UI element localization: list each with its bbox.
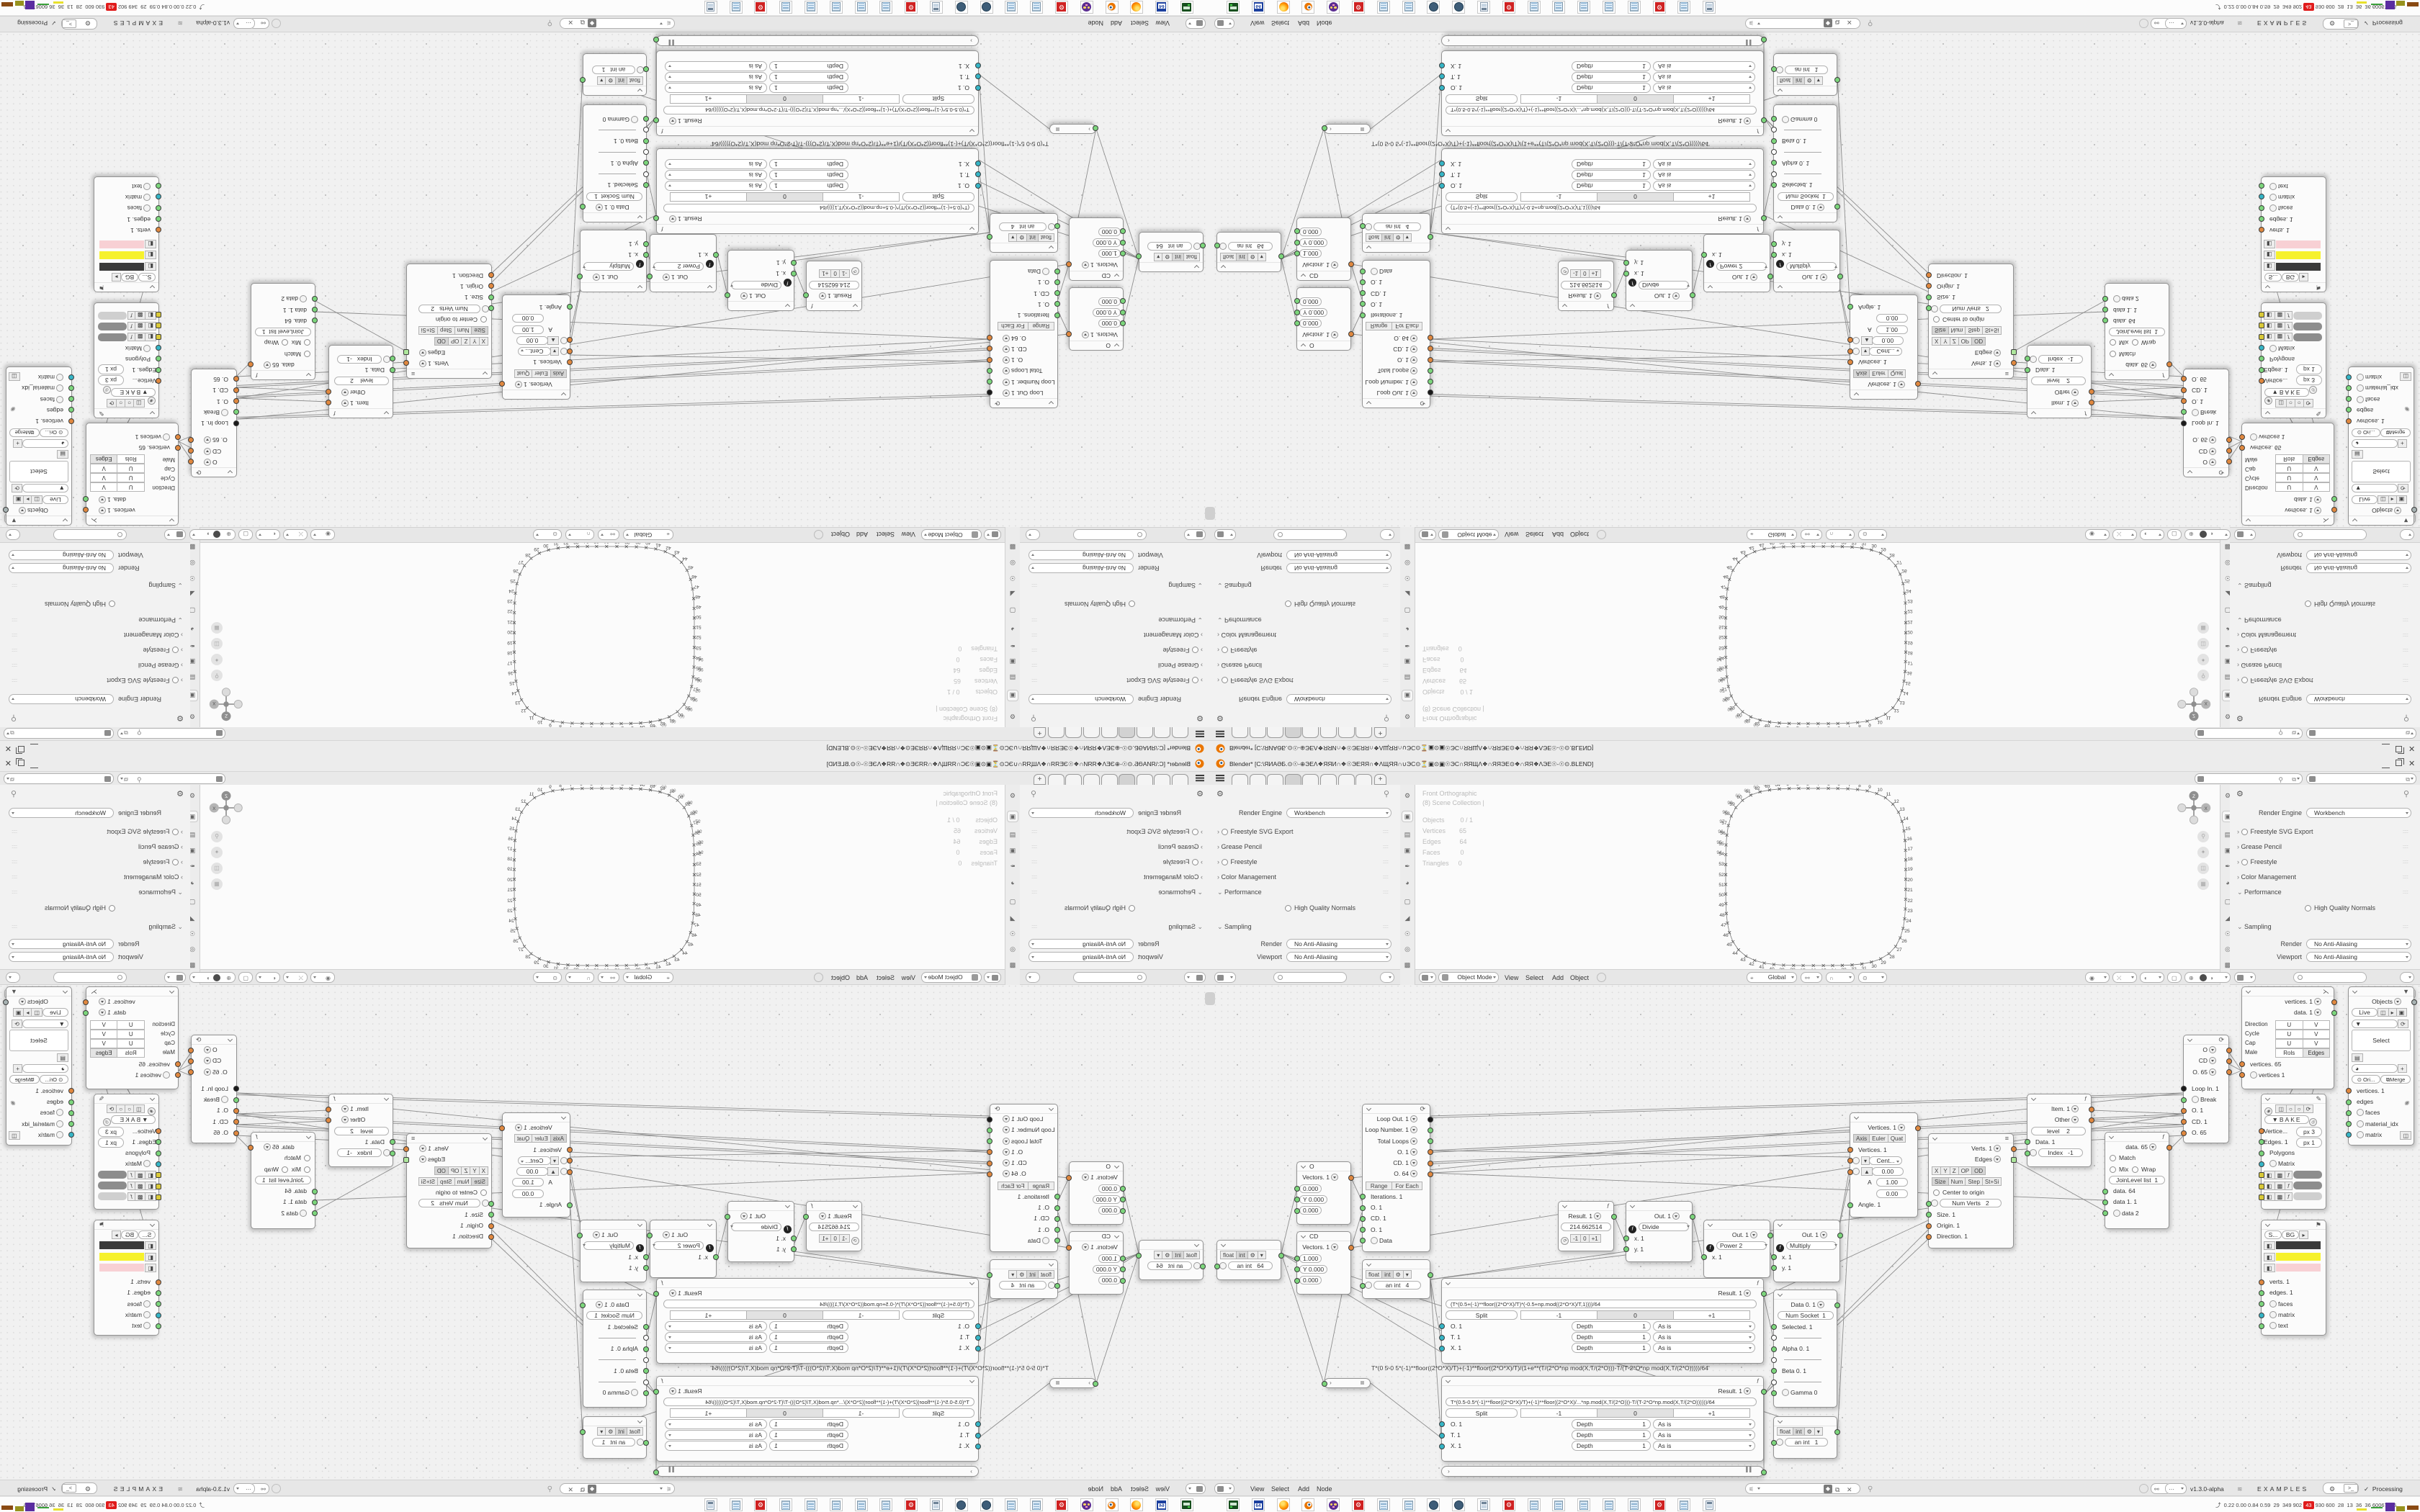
svg-text:63: 63 <box>1763 724 1769 727</box>
svg-text:29: 29 <box>1881 546 1886 552</box>
svg-text:48: 48 <box>1719 913 1725 918</box>
svg-text:95: 95 <box>698 667 704 672</box>
svg-text:52: 52 <box>1718 634 1724 639</box>
svg-text:27: 27 <box>1896 559 1902 564</box>
svg-text:46: 46 <box>691 933 697 938</box>
svg-text:1: 1 <box>632 726 635 727</box>
svg-text:99: 99 <box>1727 706 1733 711</box>
svg-text:45: 45 <box>688 564 694 570</box>
svg-text:12: 12 <box>521 708 526 713</box>
svg-text:9: 9 <box>1868 785 1871 790</box>
svg-text:46: 46 <box>691 574 697 579</box>
svg-text:9: 9 <box>549 785 552 790</box>
svg-text:12: 12 <box>1894 708 1899 713</box>
svg-text:50: 50 <box>1718 893 1724 898</box>
svg-text:29: 29 <box>1881 960 1886 966</box>
svg-text:48: 48 <box>695 594 701 599</box>
svg-text:8: 8 <box>1858 785 1861 788</box>
svg-text:20: 20 <box>1907 629 1913 634</box>
svg-text:96: 96 <box>696 678 702 683</box>
svg-text:44: 44 <box>1732 951 1738 956</box>
svg-text:95: 95 <box>1716 667 1722 672</box>
svg-text:17: 17 <box>1907 660 1913 665</box>
svg-text:21: 21 <box>1907 888 1913 893</box>
svg-text:49: 49 <box>696 604 702 609</box>
svg-text:60: 60 <box>1735 793 1741 798</box>
svg-text:63: 63 <box>1763 785 1769 788</box>
svg-text:30: 30 <box>543 543 549 548</box>
svg-text:29: 29 <box>534 546 539 552</box>
svg-text:16: 16 <box>508 670 514 675</box>
svg-text:12: 12 <box>521 799 526 804</box>
svg-text:46: 46 <box>1723 574 1729 579</box>
svg-text:38: 38 <box>624 543 630 544</box>
svg-text:5: 5 <box>590 785 593 787</box>
svg-text:43: 43 <box>674 549 680 554</box>
svg-text:4: 4 <box>602 726 605 727</box>
svg-text:60: 60 <box>679 793 685 798</box>
svg-text:64: 64 <box>641 785 647 786</box>
svg-text:1: 1 <box>1785 785 1788 786</box>
svg-text:16: 16 <box>508 837 514 842</box>
svg-text:Z: Z <box>225 794 228 799</box>
svg-text:22: 22 <box>507 608 513 613</box>
svg-text:3: 3 <box>1805 785 1808 786</box>
svg-text:52: 52 <box>696 873 702 878</box>
svg-text:44: 44 <box>1732 556 1738 561</box>
svg-text:95: 95 <box>1716 840 1722 845</box>
svg-text:45: 45 <box>1726 564 1732 570</box>
svg-text:15: 15 <box>509 827 515 832</box>
svg-text:30: 30 <box>1871 964 1877 969</box>
svg-text:24: 24 <box>1906 919 1912 924</box>
svg-text:X: X <box>2205 806 2208 811</box>
svg-text:10: 10 <box>1877 788 1883 793</box>
svg-text:17: 17 <box>507 847 513 852</box>
svg-text:62: 62 <box>661 722 667 727</box>
svg-text:2: 2 <box>622 726 625 727</box>
svg-text:43: 43 <box>1740 958 1746 963</box>
svg-text:48: 48 <box>695 913 701 918</box>
svg-text:45: 45 <box>688 942 694 948</box>
svg-text:6: 6 <box>1837 725 1840 727</box>
svg-text:17: 17 <box>507 660 513 665</box>
svg-text:94: 94 <box>1716 657 1722 662</box>
svg-text:6: 6 <box>1837 785 1840 787</box>
svg-text:5: 5 <box>1827 725 1830 727</box>
svg-text:38: 38 <box>1790 543 1796 544</box>
svg-text:11: 11 <box>1886 792 1891 797</box>
svg-text:52: 52 <box>1718 873 1724 878</box>
svg-text:26: 26 <box>513 568 519 573</box>
svg-text:51: 51 <box>696 624 702 629</box>
svg-text:42: 42 <box>1749 545 1754 550</box>
svg-text:8: 8 <box>559 724 562 727</box>
svg-text:94: 94 <box>1716 850 1722 855</box>
svg-text:21: 21 <box>1907 619 1913 624</box>
svg-text:47: 47 <box>1721 584 1726 589</box>
svg-text:7: 7 <box>1848 785 1851 788</box>
svg-text:18: 18 <box>1907 857 1913 862</box>
svg-text:3: 3 <box>1805 726 1808 727</box>
svg-text:49: 49 <box>1718 604 1724 609</box>
svg-text:97: 97 <box>1719 688 1725 693</box>
svg-text:61: 61 <box>671 719 676 724</box>
svg-text:28: 28 <box>1889 955 1895 960</box>
svg-text:3: 3 <box>612 726 615 727</box>
svg-text:7: 7 <box>569 785 572 788</box>
svg-text:14: 14 <box>511 690 517 696</box>
svg-text:11: 11 <box>529 715 534 720</box>
svg-text:28: 28 <box>525 552 531 557</box>
svg-text:22: 22 <box>1907 899 1913 904</box>
svg-text:2: 2 <box>1795 726 1798 727</box>
svg-text:64: 64 <box>1773 785 1779 786</box>
svg-text:10: 10 <box>1877 719 1883 724</box>
svg-text:10: 10 <box>537 719 543 724</box>
svg-text:52: 52 <box>696 634 702 639</box>
svg-text:32: 32 <box>563 543 569 545</box>
svg-text:11: 11 <box>1886 715 1891 720</box>
svg-text:98: 98 <box>1722 697 1728 702</box>
svg-text:22: 22 <box>1907 608 1913 613</box>
svg-text:20: 20 <box>507 629 513 634</box>
svg-text:1: 1 <box>632 785 635 786</box>
svg-text:6: 6 <box>580 725 583 727</box>
svg-text:39: 39 <box>1779 543 1785 544</box>
svg-text:44: 44 <box>682 951 688 956</box>
svg-text:32: 32 <box>1851 543 1857 545</box>
svg-text:23: 23 <box>507 909 513 914</box>
svg-text:16: 16 <box>1906 670 1912 675</box>
svg-text:4: 4 <box>602 785 605 786</box>
svg-text:X: X <box>212 701 215 706</box>
svg-text:28: 28 <box>525 955 531 960</box>
svg-text:21: 21 <box>507 888 513 893</box>
svg-text:43: 43 <box>674 958 680 963</box>
svg-text:46: 46 <box>1723 933 1729 938</box>
svg-text:50: 50 <box>1718 614 1724 619</box>
svg-text:64: 64 <box>1773 726 1779 727</box>
svg-text:2: 2 <box>622 785 625 786</box>
svg-text:12: 12 <box>1894 799 1899 804</box>
svg-text:37: 37 <box>1800 543 1806 544</box>
svg-text:62: 62 <box>661 785 667 790</box>
svg-text:99: 99 <box>687 801 693 806</box>
svg-text:47: 47 <box>694 923 699 928</box>
svg-text:8: 8 <box>1858 724 1861 727</box>
svg-text:51: 51 <box>1718 883 1724 888</box>
svg-text:97: 97 <box>695 688 701 693</box>
svg-text:15: 15 <box>509 680 515 685</box>
svg-text:61: 61 <box>671 788 676 793</box>
svg-text:36: 36 <box>1811 543 1816 544</box>
svg-text:34: 34 <box>1831 543 1837 544</box>
svg-text:13: 13 <box>1899 700 1905 705</box>
svg-text:14: 14 <box>511 816 517 822</box>
svg-text:53: 53 <box>696 862 702 867</box>
svg-text:62: 62 <box>1753 785 1759 790</box>
svg-text:33: 33 <box>573 543 579 544</box>
svg-text:61: 61 <box>1744 788 1749 793</box>
svg-text:15: 15 <box>1905 680 1911 685</box>
svg-text:13: 13 <box>515 807 521 812</box>
svg-text:48: 48 <box>1719 594 1725 599</box>
svg-text:26: 26 <box>1901 568 1907 573</box>
svg-text:17: 17 <box>1907 847 1913 852</box>
svg-text:24: 24 <box>508 919 514 924</box>
svg-text:50: 50 <box>696 614 702 619</box>
svg-text:61: 61 <box>1744 719 1749 724</box>
svg-text:14: 14 <box>1903 690 1909 696</box>
svg-text:37: 37 <box>614 543 620 544</box>
svg-text:7: 7 <box>1848 724 1851 727</box>
svg-text:63: 63 <box>651 785 657 788</box>
svg-text:42: 42 <box>1749 962 1754 967</box>
svg-text:2: 2 <box>1795 785 1798 786</box>
svg-text:53: 53 <box>1718 862 1724 867</box>
svg-text:15: 15 <box>1905 827 1911 832</box>
svg-text:64: 64 <box>641 726 647 727</box>
svg-text:19: 19 <box>1907 867 1913 872</box>
svg-text:26: 26 <box>1901 939 1907 944</box>
svg-text:28: 28 <box>1889 552 1895 557</box>
svg-text:99: 99 <box>1727 801 1733 806</box>
svg-text:30: 30 <box>1871 543 1877 548</box>
svg-text:X: X <box>2205 701 2208 706</box>
svg-text:23: 23 <box>1907 909 1913 914</box>
svg-text:7: 7 <box>569 724 572 727</box>
svg-text:20: 20 <box>507 878 513 883</box>
svg-text:18: 18 <box>507 650 513 655</box>
svg-text:45: 45 <box>1726 942 1732 948</box>
svg-text:25: 25 <box>510 578 516 583</box>
svg-text:9: 9 <box>1868 722 1871 727</box>
svg-text:62: 62 <box>1753 722 1759 727</box>
svg-text:20: 20 <box>1907 878 1913 883</box>
svg-text:4: 4 <box>1815 785 1818 786</box>
svg-text:96: 96 <box>1718 678 1724 683</box>
svg-text:X: X <box>212 806 215 811</box>
svg-text:9: 9 <box>549 722 552 727</box>
svg-text:19: 19 <box>1907 640 1913 645</box>
svg-text:24: 24 <box>508 588 514 593</box>
svg-text:35: 35 <box>1821 543 1827 544</box>
svg-text:8: 8 <box>559 785 562 788</box>
svg-text:95: 95 <box>698 840 704 845</box>
svg-text:63: 63 <box>651 724 657 727</box>
svg-text:40: 40 <box>645 543 651 545</box>
svg-text:42: 42 <box>665 545 671 550</box>
svg-text:24: 24 <box>1906 588 1912 593</box>
svg-text:98: 98 <box>1722 810 1728 815</box>
svg-text:96: 96 <box>696 829 702 834</box>
svg-text:18: 18 <box>1907 650 1913 655</box>
svg-text:14: 14 <box>1903 816 1909 822</box>
svg-text:35: 35 <box>593 543 599 544</box>
svg-text:40: 40 <box>1769 543 1775 545</box>
svg-text:42: 42 <box>665 962 671 967</box>
svg-text:36: 36 <box>604 543 609 544</box>
svg-text:Z: Z <box>2192 794 2195 799</box>
svg-text:13: 13 <box>1899 807 1905 812</box>
svg-text:41: 41 <box>655 543 661 547</box>
svg-text:60: 60 <box>1735 714 1741 719</box>
svg-text:97: 97 <box>1719 819 1725 824</box>
svg-text:5: 5 <box>1827 785 1830 787</box>
svg-text:25: 25 <box>510 929 516 934</box>
svg-text:51: 51 <box>1718 624 1724 629</box>
svg-text:39: 39 <box>635 543 641 544</box>
svg-text:Z: Z <box>225 713 228 718</box>
svg-text:3: 3 <box>612 785 615 786</box>
svg-text:47: 47 <box>1721 923 1726 928</box>
svg-text:29: 29 <box>534 960 539 966</box>
svg-text:10: 10 <box>537 788 543 793</box>
svg-text:41: 41 <box>1759 543 1765 547</box>
svg-text:1: 1 <box>1785 726 1788 727</box>
svg-text:50: 50 <box>696 893 702 898</box>
svg-text:30: 30 <box>543 964 549 969</box>
svg-text:27: 27 <box>518 948 524 953</box>
svg-text:Z: Z <box>2192 713 2195 718</box>
svg-text:19: 19 <box>507 640 513 645</box>
svg-text:98: 98 <box>692 810 698 815</box>
svg-text:98: 98 <box>692 697 698 702</box>
svg-text:18: 18 <box>507 857 513 862</box>
svg-text:4: 4 <box>1815 726 1818 727</box>
svg-text:27: 27 <box>518 559 524 564</box>
svg-text:22: 22 <box>507 899 513 904</box>
svg-text:97: 97 <box>695 819 701 824</box>
svg-text:51: 51 <box>696 883 702 888</box>
svg-text:25: 25 <box>1904 578 1910 583</box>
svg-text:27: 27 <box>1896 948 1902 953</box>
svg-text:23: 23 <box>1907 598 1913 603</box>
svg-text:49: 49 <box>1718 903 1724 908</box>
svg-text:25: 25 <box>1904 929 1910 934</box>
svg-text:94: 94 <box>698 657 704 662</box>
svg-text:53: 53 <box>696 645 702 650</box>
svg-text:43: 43 <box>1740 549 1746 554</box>
svg-text:5: 5 <box>590 725 593 727</box>
svg-text:16: 16 <box>1906 837 1912 842</box>
svg-text:49: 49 <box>696 903 702 908</box>
svg-text:44: 44 <box>682 556 688 561</box>
svg-text:60: 60 <box>679 714 685 719</box>
svg-text:99: 99 <box>687 706 693 711</box>
svg-text:21: 21 <box>507 619 513 624</box>
svg-text:34: 34 <box>583 543 589 544</box>
svg-text:94: 94 <box>698 850 704 855</box>
svg-text:26: 26 <box>513 939 519 944</box>
svg-text:11: 11 <box>529 792 534 797</box>
svg-text:53: 53 <box>1718 645 1724 650</box>
svg-text:13: 13 <box>515 700 521 705</box>
svg-text:19: 19 <box>507 867 513 872</box>
svg-text:33: 33 <box>1841 543 1847 544</box>
svg-text:47: 47 <box>694 584 699 589</box>
svg-text:6: 6 <box>580 785 583 787</box>
svg-text:96: 96 <box>1718 829 1724 834</box>
svg-text:31: 31 <box>1861 543 1867 546</box>
svg-text:23: 23 <box>507 598 513 603</box>
svg-text:31: 31 <box>553 543 559 546</box>
